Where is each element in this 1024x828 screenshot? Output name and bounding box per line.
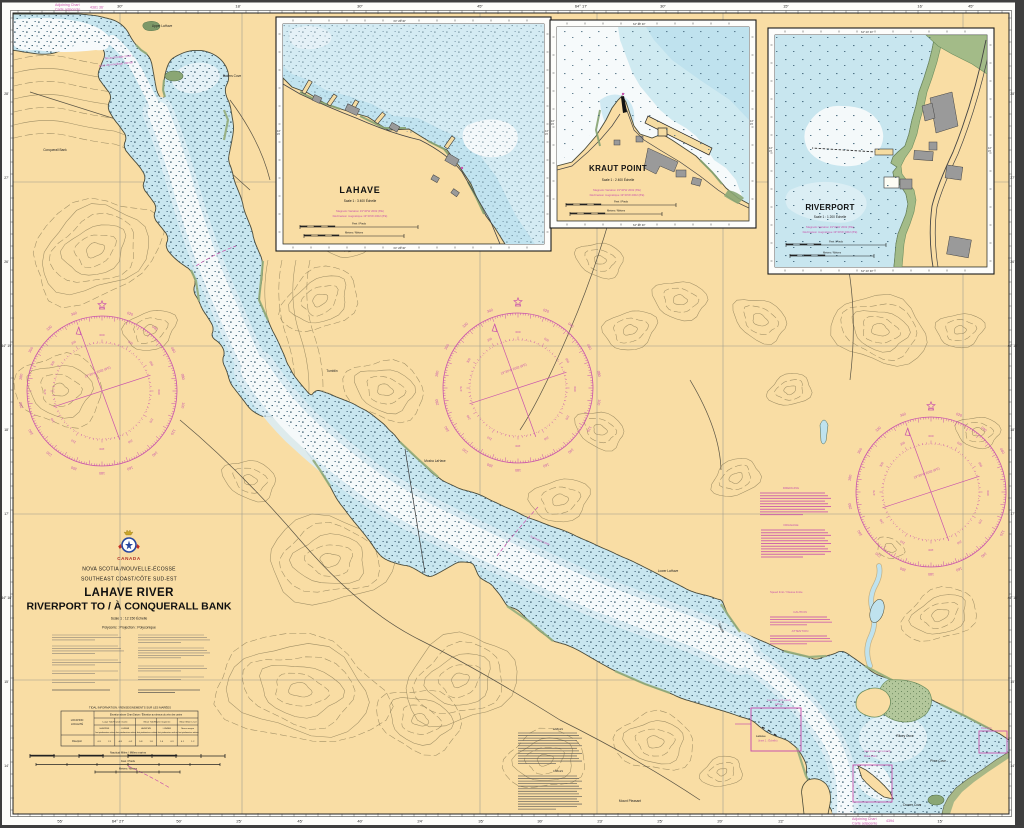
- svg-text:Ritcey Cove: Ritcey Cove: [896, 734, 913, 738]
- svg-text:64° 17': 64° 17': [575, 4, 588, 9]
- svg-text:000: 000: [928, 434, 933, 438]
- svg-text:Elevation above Chart Datum /: Elevation above Chart Datum / Élévation …: [110, 714, 183, 717]
- svg-text:LAHAVE RIVER: LAHAVE RIVER: [84, 587, 174, 599]
- svg-text:27': 27': [4, 176, 9, 180]
- svg-text:64° 20' 30": 64° 20' 30": [394, 19, 407, 23]
- svg-text:metres mètres: metres mètres: [166, 731, 178, 734]
- svg-text:Magnetic Variation 19°40'W 200: Magnetic Variation 19°40'W 2002 (8'E): [593, 188, 641, 192]
- svg-text:Magnetic Variation 19°40'W 200: Magnetic Variation 19°40'W 2002 (8'E): [336, 209, 384, 213]
- svg-text:30": 30": [357, 4, 363, 9]
- svg-text:090: 090: [573, 386, 577, 391]
- svg-text:Phee Cove: Phee Cove: [930, 759, 946, 763]
- svg-text:090: 090: [986, 490, 990, 495]
- svg-text:Adjoining Chart: Adjoining Chart: [55, 3, 80, 7]
- svg-text:24': 24': [417, 819, 422, 824]
- svg-text:180: 180: [515, 468, 521, 472]
- svg-text:Crower Cove: Crower Cove: [903, 803, 922, 807]
- svg-text:55': 55': [57, 819, 62, 824]
- svg-text:ATTENTION: ATTENTION: [792, 629, 809, 633]
- svg-text:Riverport: Riverport: [72, 740, 82, 743]
- svg-text:000: 000: [99, 333, 104, 337]
- svg-text:Scale 1 : 12 150 Échelle: Scale 1 : 12 150 Échelle: [111, 616, 148, 621]
- svg-text:64° 20' 30": 64° 20' 30": [394, 246, 407, 250]
- svg-text:14': 14': [1010, 764, 1015, 768]
- svg-text:30": 30": [117, 4, 123, 9]
- svg-text:RIVERPORT: RIVERPORT: [805, 203, 854, 212]
- svg-text:20': 20': [717, 819, 722, 824]
- svg-text:Metres / Mètres: Metres / Mètres: [607, 209, 626, 213]
- svg-text:18': 18': [1010, 428, 1015, 432]
- svg-text:SOUTHEAST COAST/CÔTE SUD-EST: SOUTHEAST COAST/CÔTE SUD-EST: [81, 576, 177, 583]
- svg-text:28': 28': [1010, 92, 1015, 96]
- svg-text:14': 14': [4, 764, 9, 768]
- svg-text:CANADA: CANADA: [117, 556, 141, 561]
- svg-text:Scale 1 : 2 400 Échelle: Scale 1 : 2 400 Échelle: [602, 177, 635, 182]
- svg-text:Mean Water Level: Mean Water Level: [180, 721, 197, 724]
- svg-text:15": 15": [783, 4, 789, 9]
- svg-text:(see inset / voir encart): (see inset / voir encart): [767, 699, 792, 702]
- svg-text:Nautical Miles / Milles marins: Nautical Miles / Milles marins: [110, 751, 147, 755]
- svg-text:Metres / Mètres: Metres / Mètres: [119, 767, 138, 771]
- svg-text:64° 20' 30": 64° 20' 30": [861, 269, 874, 273]
- svg-text:64° 20' 30": 64° 20' 30": [633, 223, 646, 227]
- svg-text:17': 17': [4, 512, 9, 516]
- svg-text:LLW/BMI: LLW/BMI: [121, 728, 130, 730]
- svg-text:feet pieds: feet pieds: [116, 731, 124, 734]
- svg-text:LOCATION: LOCATION: [71, 719, 84, 722]
- svg-text:270: 270: [872, 490, 876, 495]
- svg-text:Feet / Pieds: Feet / Pieds: [614, 200, 629, 204]
- svg-text:RIVERPORT TO / À CONQUERALL BA: RIVERPORT TO / À CONQUERALL BANK: [27, 600, 232, 613]
- svg-text:TIDAL INFORMATION / RENSEIGNEM: TIDAL INFORMATION / RENSEIGNEMENTS SUR L…: [89, 705, 171, 710]
- svg-text:LAHAVE: LAHAVE: [339, 185, 380, 195]
- svg-text:15': 15': [750, 123, 754, 126]
- svg-text:Lower LaHave: Lower LaHave: [658, 569, 679, 573]
- svg-text:Tumblin: Tumblin: [326, 369, 337, 373]
- svg-text:CAUTION: CAUTION: [793, 610, 807, 614]
- svg-text:LaHave: LaHave: [756, 734, 766, 738]
- svg-text:26': 26': [4, 260, 9, 264]
- svg-text:44° 19': 44° 19': [1008, 344, 1018, 348]
- svg-text:26': 26': [1010, 260, 1015, 264]
- svg-text:Mean Tide/Marée moyenne: Mean Tide/Marée moyenne: [144, 721, 171, 724]
- svg-text:Upper LaHave: Upper LaHave: [152, 24, 173, 28]
- svg-text:metres mètres: metres mètres: [124, 731, 136, 734]
- svg-text:metres mètres: metres mètres: [103, 731, 115, 734]
- svg-text:180: 180: [928, 548, 933, 552]
- svg-text:KRAUT POINT: KRAUT POINT: [589, 164, 647, 173]
- svg-text:(Inset 1 : Échelle): (Inset 1 : Échelle): [758, 740, 778, 743]
- svg-text:Niveau moyen: Niveau moyen: [181, 728, 194, 730]
- svg-text:Feet / Pieds: Feet / Pieds: [121, 759, 136, 763]
- svg-text:(see inset / voir encart): (see inset / voir encart): [864, 749, 891, 753]
- svg-text:Scale 1 : 1 200 Échelle: Scale 1 : 1 200 Échelle: [814, 214, 847, 219]
- svg-text:feet pieds: feet pieds: [158, 731, 166, 734]
- svg-text:27': 27': [1010, 176, 1015, 180]
- svg-text:Scale 1 : 3 400 Échelle: Scale 1 : 3 400 Échelle: [344, 198, 377, 203]
- svg-text:180: 180: [515, 444, 520, 448]
- svg-text:Carte adjacente: Carte adjacente: [55, 8, 80, 12]
- svg-text:Kraut Point: Kraut Point: [864, 754, 877, 758]
- svg-text:DREDGING: DREDGING: [783, 486, 800, 490]
- svg-text:35': 35': [478, 819, 483, 824]
- svg-text:23': 23': [597, 819, 602, 824]
- svg-text:LLW/BMI: LLW/BMI: [163, 728, 172, 730]
- svg-text:Riverport: Riverport: [981, 726, 992, 730]
- svg-text:16': 16': [917, 4, 922, 9]
- svg-text:17': 17': [1010, 512, 1015, 516]
- svg-text:15': 15': [551, 123, 555, 126]
- svg-text:64° 20' 30": 64° 20' 30": [633, 22, 646, 26]
- svg-text:45": 45": [968, 4, 974, 9]
- svg-text:feet pieds: feet pieds: [137, 731, 145, 734]
- svg-text:metres mètres: metres mètres: [145, 731, 157, 734]
- svg-text:22': 22': [778, 819, 783, 824]
- svg-text:LOCALITÉ: LOCALITÉ: [71, 723, 83, 726]
- svg-text:15': 15': [769, 150, 773, 153]
- svg-text:Déclinaison magnétique 19°40'W: Déclinaison magnétique 19°40'W 2002 (8'E…: [590, 193, 645, 197]
- svg-text:Bakers Cove: Bakers Cove: [223, 74, 241, 78]
- svg-text:4394: 4394: [886, 819, 894, 823]
- svg-text:270: 270: [43, 389, 47, 394]
- svg-text:180: 180: [99, 471, 105, 475]
- svg-text:40': 40': [357, 819, 362, 824]
- svg-text:45": 45": [477, 4, 483, 9]
- svg-text:44° 16': 44° 16': [1, 596, 12, 600]
- svg-text:180: 180: [99, 447, 104, 451]
- svg-text:30': 30': [537, 819, 542, 824]
- svg-text:feet pieds: feet pieds: [95, 731, 103, 734]
- svg-text:CABLES: CABLES: [553, 727, 564, 731]
- svg-text:4381 36': 4381 36': [90, 6, 104, 10]
- svg-text:Metres / Mètres: Metres / Mètres: [345, 231, 364, 235]
- svg-text:15': 15': [4, 680, 9, 684]
- svg-text:Déclinaison magnétique 19°40'W: Déclinaison magnétique 19°40'W 2002 (8'E…: [803, 230, 858, 234]
- svg-text:090: 090: [157, 389, 161, 394]
- svg-text:30": 30": [660, 4, 666, 9]
- svg-text:Large Tide/Grande marée: Large Tide/Grande marée: [102, 721, 128, 724]
- svg-text:NOVA SCOTIA /NOUVELLE-ÉCOSSE: NOVA SCOTIA /NOUVELLE-ÉCOSSE: [82, 566, 176, 573]
- svg-text:LaHave: LaHave: [775, 703, 784, 706]
- svg-text:Conquerall Bank: Conquerall Bank: [43, 148, 67, 152]
- svg-text:Metres / Mètres: Metres / Mètres: [823, 251, 842, 255]
- svg-text:feet pieds: feet pieds: [178, 731, 186, 734]
- svg-text:18': 18': [4, 428, 9, 432]
- svg-text:25': 25': [236, 819, 241, 824]
- svg-text:15': 15': [937, 819, 942, 824]
- svg-text:64° 27': 64° 27': [112, 819, 125, 824]
- svg-text:Carte adjacente: Carte adjacente: [852, 822, 877, 826]
- svg-text:180: 180: [928, 572, 934, 576]
- svg-text:Polyconic : Projection : Polyc: Polyconic : Projection : Polyconique: [102, 626, 156, 630]
- svg-text:Mosha LaHave: Mosha LaHave: [424, 459, 446, 463]
- svg-text:Feet / Pieds: Feet / Pieds: [829, 240, 844, 244]
- svg-text:HHW/PMS: HHW/PMS: [141, 728, 151, 730]
- svg-text:15': 15': [545, 133, 549, 136]
- svg-text:DRAGAGE: DRAGAGE: [783, 523, 798, 527]
- svg-text:15': 15': [277, 133, 281, 136]
- svg-text:15': 15': [1010, 680, 1015, 684]
- svg-text:Speed limit / Vitesse limite: Speed limit / Vitesse limite: [770, 590, 803, 594]
- svg-text:64° 20' 30": 64° 20' 30": [861, 30, 874, 34]
- svg-text:15': 15': [988, 150, 992, 153]
- svg-text:25': 25': [657, 819, 662, 824]
- svg-text:000: 000: [515, 330, 520, 334]
- svg-text:Magnetic Variation 19°40'W 200: Magnetic Variation 19°40'W 2002 (8'E): [806, 225, 854, 229]
- svg-text:44° 16': 44° 16': [1008, 596, 1018, 600]
- svg-text:45': 45': [297, 819, 302, 824]
- svg-text:44° 19': 44° 19': [1, 344, 12, 348]
- svg-text:metres mètres: metres mètres: [187, 731, 199, 734]
- svg-text:Déclinaison magnétique 19°40'W: Déclinaison magnétique 19°40'W 2002 (8'E…: [333, 214, 388, 218]
- svg-text:28': 28': [4, 92, 9, 96]
- svg-text:18': 18': [235, 4, 240, 9]
- svg-text:270: 270: [459, 386, 463, 391]
- svg-text:Mount Pleasant: Mount Pleasant: [619, 799, 641, 803]
- svg-text:50': 50': [176, 819, 181, 824]
- svg-text:Adjoining Chart: Adjoining Chart: [852, 817, 877, 821]
- svg-text:HHW/PMS: HHW/PMS: [100, 728, 110, 730]
- svg-text:Feet / Pieds: Feet / Pieds: [352, 222, 367, 226]
